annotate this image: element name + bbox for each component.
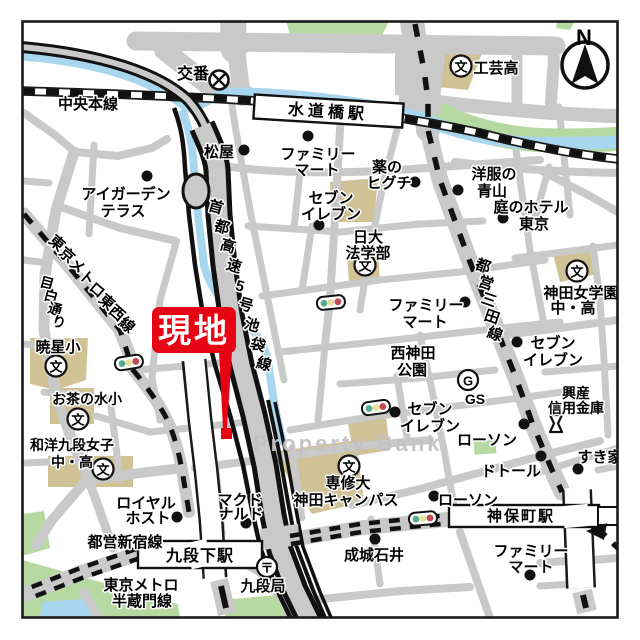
svg-text:ローソン: ローソン bbox=[457, 432, 517, 449]
svg-text:神保町駅: 神保町駅 bbox=[487, 507, 555, 525]
svg-text:〒: 〒 bbox=[260, 561, 273, 576]
svg-text:文: 文 bbox=[454, 60, 468, 75]
svg-text:イレブン: イレブン bbox=[301, 205, 361, 223]
svg-text:文: 文 bbox=[96, 463, 110, 478]
svg-text:ローソン: ローソン bbox=[438, 492, 498, 509]
svg-text:ファミリー: ファミリー bbox=[388, 297, 463, 314]
svg-text:ヒグチ: ヒグチ bbox=[366, 174, 411, 192]
svg-text:セブン: セブン bbox=[308, 189, 353, 207]
svg-text:信用金庫: 信用金庫 bbox=[548, 400, 604, 416]
svg-text:公園: 公園 bbox=[397, 362, 427, 379]
svg-text:興産: 興産 bbox=[562, 385, 590, 401]
svg-text:文: 文 bbox=[49, 360, 63, 375]
svg-text:ホスト: ホスト bbox=[125, 510, 170, 527]
svg-text:和洋九段女子: 和洋九段女子 bbox=[30, 437, 114, 453]
svg-text:中・高: 中・高 bbox=[51, 454, 93, 470]
svg-text:セブン: セブン bbox=[530, 334, 575, 352]
svg-text:GS: GS bbox=[465, 391, 485, 407]
svg-text:九段下駅: 九段下駅 bbox=[165, 546, 234, 565]
svg-text:文: 文 bbox=[570, 265, 584, 280]
svg-text:中・高: 中・高 bbox=[550, 299, 595, 317]
svg-text:庭のホテル: 庭のホテル bbox=[493, 198, 568, 216]
svg-text:ドトール: ドトール bbox=[481, 463, 541, 480]
svg-text:日大: 日大 bbox=[353, 228, 383, 246]
svg-text:暁星小: 暁星小 bbox=[35, 339, 80, 356]
svg-text:洋服の: 洋服の bbox=[471, 165, 516, 183]
svg-text:文: 文 bbox=[342, 460, 356, 475]
svg-text:イレブン: イレブン bbox=[523, 351, 583, 369]
svg-text:東京メトロ: 東京メトロ bbox=[103, 576, 178, 594]
svg-text:お茶の水小: お茶の水小 bbox=[52, 391, 122, 407]
svg-text:マート: マート bbox=[508, 559, 553, 576]
svg-text:テラス: テラス bbox=[101, 203, 146, 220]
svg-text:松屋: 松屋 bbox=[204, 143, 234, 161]
svg-text:半蔵門線: 半蔵門線 bbox=[112, 592, 172, 610]
svg-text:イレブン: イレブン bbox=[400, 417, 460, 435]
svg-text:ファミリー: ファミリー bbox=[493, 543, 568, 560]
svg-text:工芸高: 工芸高 bbox=[473, 59, 518, 77]
svg-text:交番: 交番 bbox=[177, 64, 210, 83]
svg-text:文: 文 bbox=[71, 413, 85, 428]
svg-text:ナルド: ナルド bbox=[218, 506, 263, 523]
svg-text:法学部: 法学部 bbox=[345, 244, 390, 262]
svg-text:現地: 現地 bbox=[158, 312, 230, 349]
svg-text:九段局: 九段局 bbox=[239, 577, 285, 595]
svg-text:アイガーデン: アイガーデン bbox=[81, 185, 170, 203]
svg-text:ファミリー: ファミリー bbox=[280, 146, 355, 163]
svg-text:薬の: 薬の bbox=[371, 158, 402, 176]
svg-text:マート: マート bbox=[402, 314, 447, 331]
svg-text:N: N bbox=[576, 25, 592, 50]
svg-text:青山: 青山 bbox=[477, 182, 507, 200]
svg-text:専修大: 専修大 bbox=[325, 474, 370, 492]
svg-text:神田キャンパス: 神田キャンパス bbox=[293, 491, 398, 509]
svg-text:すき家: すき家 bbox=[577, 448, 622, 466]
svg-text:成城石井: 成城石井 bbox=[344, 546, 404, 564]
svg-text:東京: 東京 bbox=[519, 215, 549, 233]
svg-text:西神田: 西神田 bbox=[390, 344, 435, 362]
svg-text:都営新宿線: 都営新宿線 bbox=[86, 533, 162, 551]
svg-text:中央本線: 中央本線 bbox=[58, 95, 118, 113]
svg-text:セブン: セブン bbox=[407, 400, 452, 418]
svg-text:マート: マート bbox=[294, 162, 339, 179]
svg-text:G: G bbox=[463, 374, 473, 389]
